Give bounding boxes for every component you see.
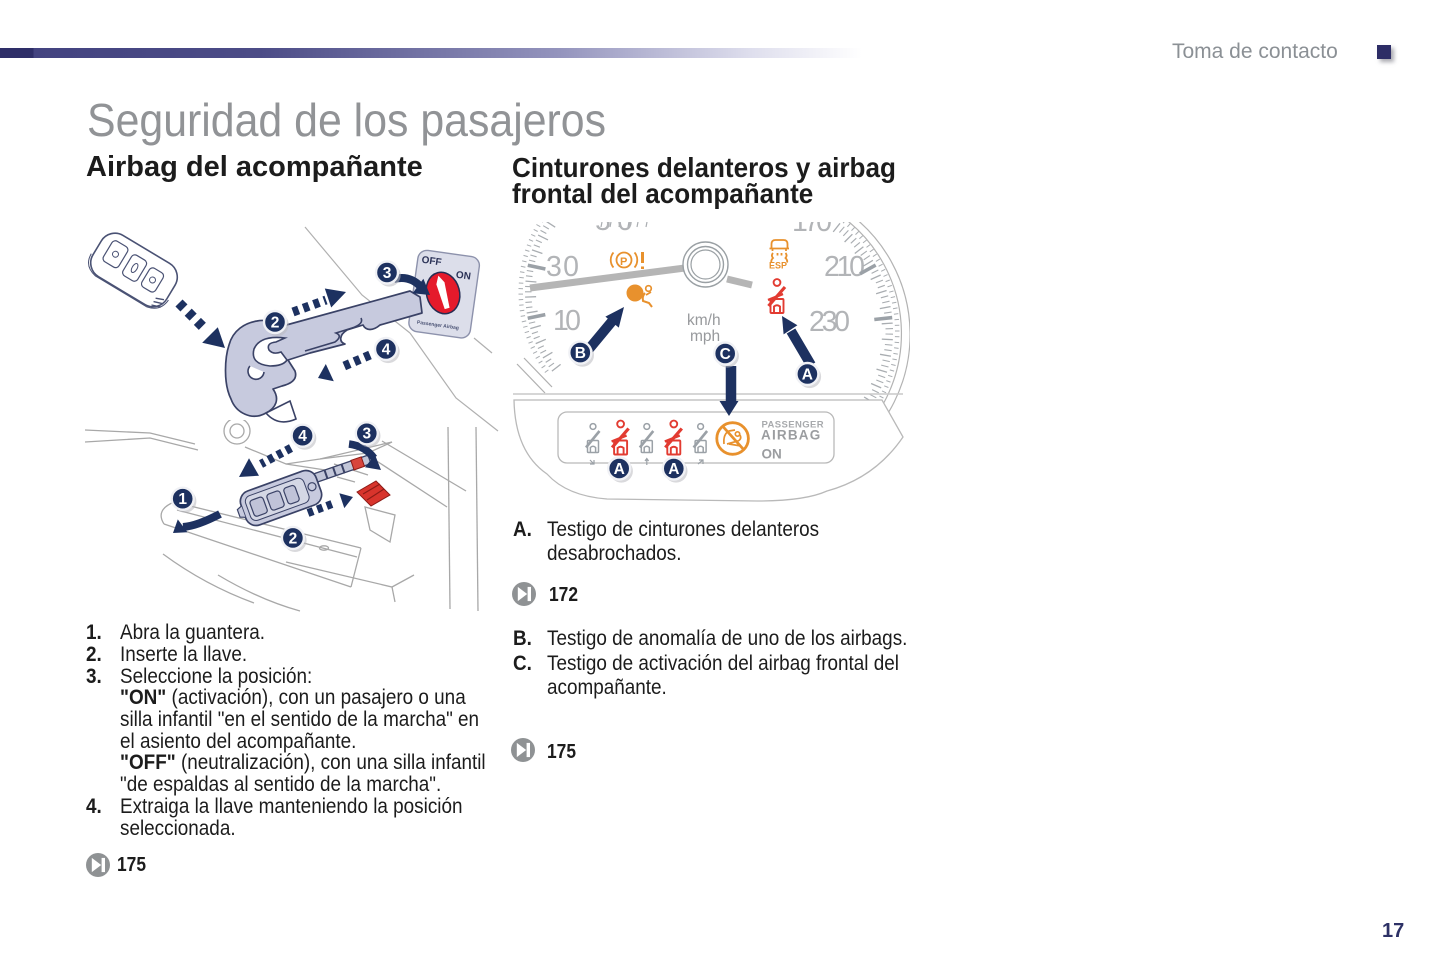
svg-text:3: 3 xyxy=(362,426,371,443)
svg-text:A: A xyxy=(614,461,625,478)
svg-text:1: 1 xyxy=(178,491,187,508)
svg-text:3: 3 xyxy=(383,265,392,282)
svg-text:30: 30 xyxy=(546,251,579,283)
svg-text:2: 2 xyxy=(289,530,298,547)
svg-text:2: 2 xyxy=(271,314,280,331)
svg-text:170: 170 xyxy=(792,222,832,238)
svg-text:ON: ON xyxy=(762,447,782,462)
svg-text:AIRBAG: AIRBAG xyxy=(761,428,821,443)
svg-text:B: B xyxy=(575,345,586,362)
svg-text:C: C xyxy=(720,346,731,363)
svg-text:10: 10 xyxy=(553,305,581,337)
svg-text:km/h: km/h xyxy=(687,312,721,329)
svg-text:A: A xyxy=(668,461,679,478)
svg-text:4: 4 xyxy=(298,428,307,445)
svg-text:50: 50 xyxy=(595,222,633,237)
svg-text:ON: ON xyxy=(455,270,471,283)
svg-text:4: 4 xyxy=(382,341,391,358)
svg-text:ESP: ESP xyxy=(769,261,787,271)
svg-text:mph: mph xyxy=(690,328,720,345)
svg-text:P: P xyxy=(620,256,627,268)
svg-text:A: A xyxy=(802,366,813,383)
svg-text:230: 230 xyxy=(809,306,850,338)
svg-text:210: 210 xyxy=(824,251,865,283)
